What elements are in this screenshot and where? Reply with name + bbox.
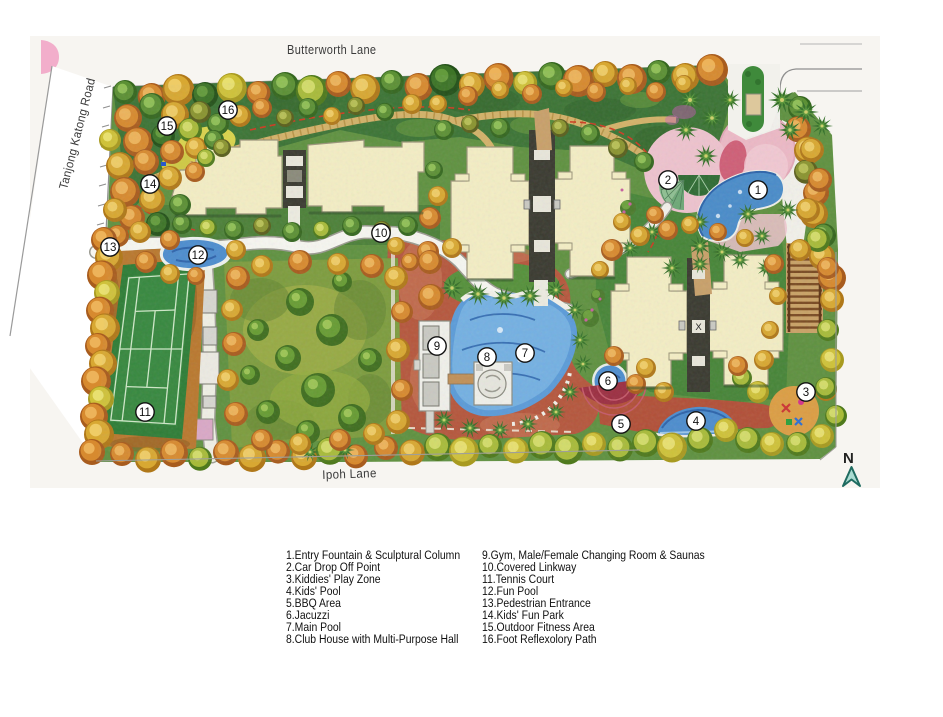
svg-text:9: 9 — [434, 341, 440, 353]
svg-text:13: 13 — [104, 242, 117, 254]
svg-text:15: 15 — [161, 121, 174, 133]
svg-text:12: 12 — [192, 250, 205, 262]
svg-text:16: 16 — [222, 105, 235, 117]
svg-text:14: 14 — [144, 179, 157, 191]
svg-text:11: 11 — [139, 407, 151, 419]
svg-text:8: 8 — [484, 352, 490, 364]
svg-text:6: 6 — [605, 376, 611, 388]
svg-text:4: 4 — [693, 416, 700, 428]
svg-text:7: 7 — [522, 348, 528, 360]
svg-text:5: 5 — [618, 419, 624, 431]
svg-text:3: 3 — [803, 387, 809, 399]
svg-text:1: 1 — [755, 185, 761, 197]
svg-text:10: 10 — [375, 228, 388, 240]
svg-text:2: 2 — [665, 175, 671, 187]
